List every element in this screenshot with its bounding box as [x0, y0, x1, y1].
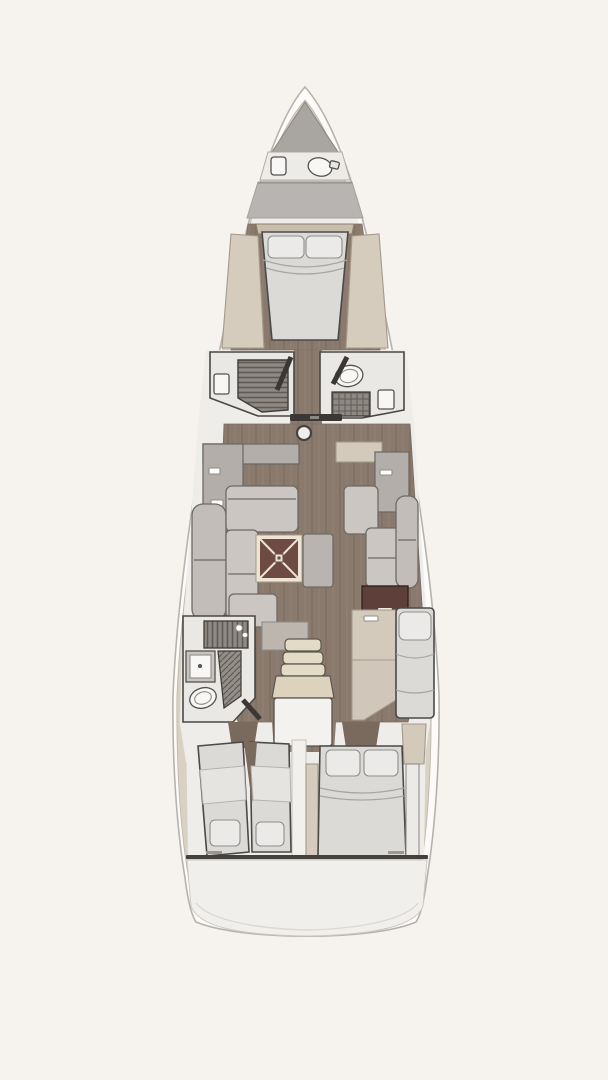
mast-post [297, 426, 311, 440]
salon-ottoman [303, 534, 333, 587]
forward-bed-pillow-right [306, 236, 342, 258]
stove-knob [242, 632, 247, 637]
salon-table-group [256, 535, 302, 582]
bow-bulkhead-step [247, 182, 363, 218]
bulkhead-fitting-right [388, 851, 404, 854]
bulkhead-fitting-left [206, 851, 222, 854]
starboard-bed-pillow-left [326, 750, 360, 776]
starboard-side-bed-pillow [399, 612, 431, 640]
starboard-cabin-shelf-top [402, 724, 426, 764]
companionway-step-2 [283, 652, 323, 664]
sliding-door-handle [310, 416, 319, 419]
port-berth-right-pillow [256, 822, 284, 846]
companionway-landing [274, 698, 332, 746]
port-sofa-back-bolster [192, 504, 226, 620]
stern [186, 851, 428, 936]
companionway-step-3 [281, 664, 325, 676]
starboard-head-shower-grate [332, 392, 370, 416]
port-berth-left-pillow [210, 820, 240, 846]
bow-head [260, 152, 350, 180]
starboard-sofa-back-bolster [396, 496, 418, 588]
companionway-step-base [272, 676, 334, 698]
yacht-floor-plan [0, 0, 608, 1080]
port-berth-left-blanket [200, 766, 246, 804]
forward-bed-pillow-left [268, 236, 304, 258]
starboard-counter-handle [380, 470, 392, 475]
starboard-cabin-wood-entry [342, 722, 380, 748]
starboard-head [320, 352, 404, 418]
starboard-sofa-top-bench [344, 486, 378, 534]
cabin-center-divider [292, 740, 306, 858]
transom-platform [187, 860, 427, 936]
starboard-cabin-strip-right [406, 764, 419, 856]
galley-sink-left [209, 468, 220, 474]
bow-head-sink [271, 157, 286, 175]
port-sofa-top-bench [226, 486, 298, 532]
starboard-bed-pillow-right [364, 750, 398, 776]
starboard-cabin-shelf-left [306, 764, 318, 856]
port-shower-sink [214, 374, 229, 394]
starboard-head-sink [378, 390, 394, 409]
companionway-step-1 [285, 639, 321, 651]
forward-owner-cabin [222, 224, 388, 348]
table-center-dot [278, 557, 281, 560]
floor-plan-canvas [0, 0, 608, 1080]
wardrobe-handle [364, 616, 378, 621]
port-berth-right-blanket [251, 766, 291, 802]
aft-bulkhead [186, 855, 428, 859]
stove-knob [236, 625, 243, 632]
aft-port-head [183, 616, 260, 722]
aft-head-faucet [198, 664, 202, 668]
